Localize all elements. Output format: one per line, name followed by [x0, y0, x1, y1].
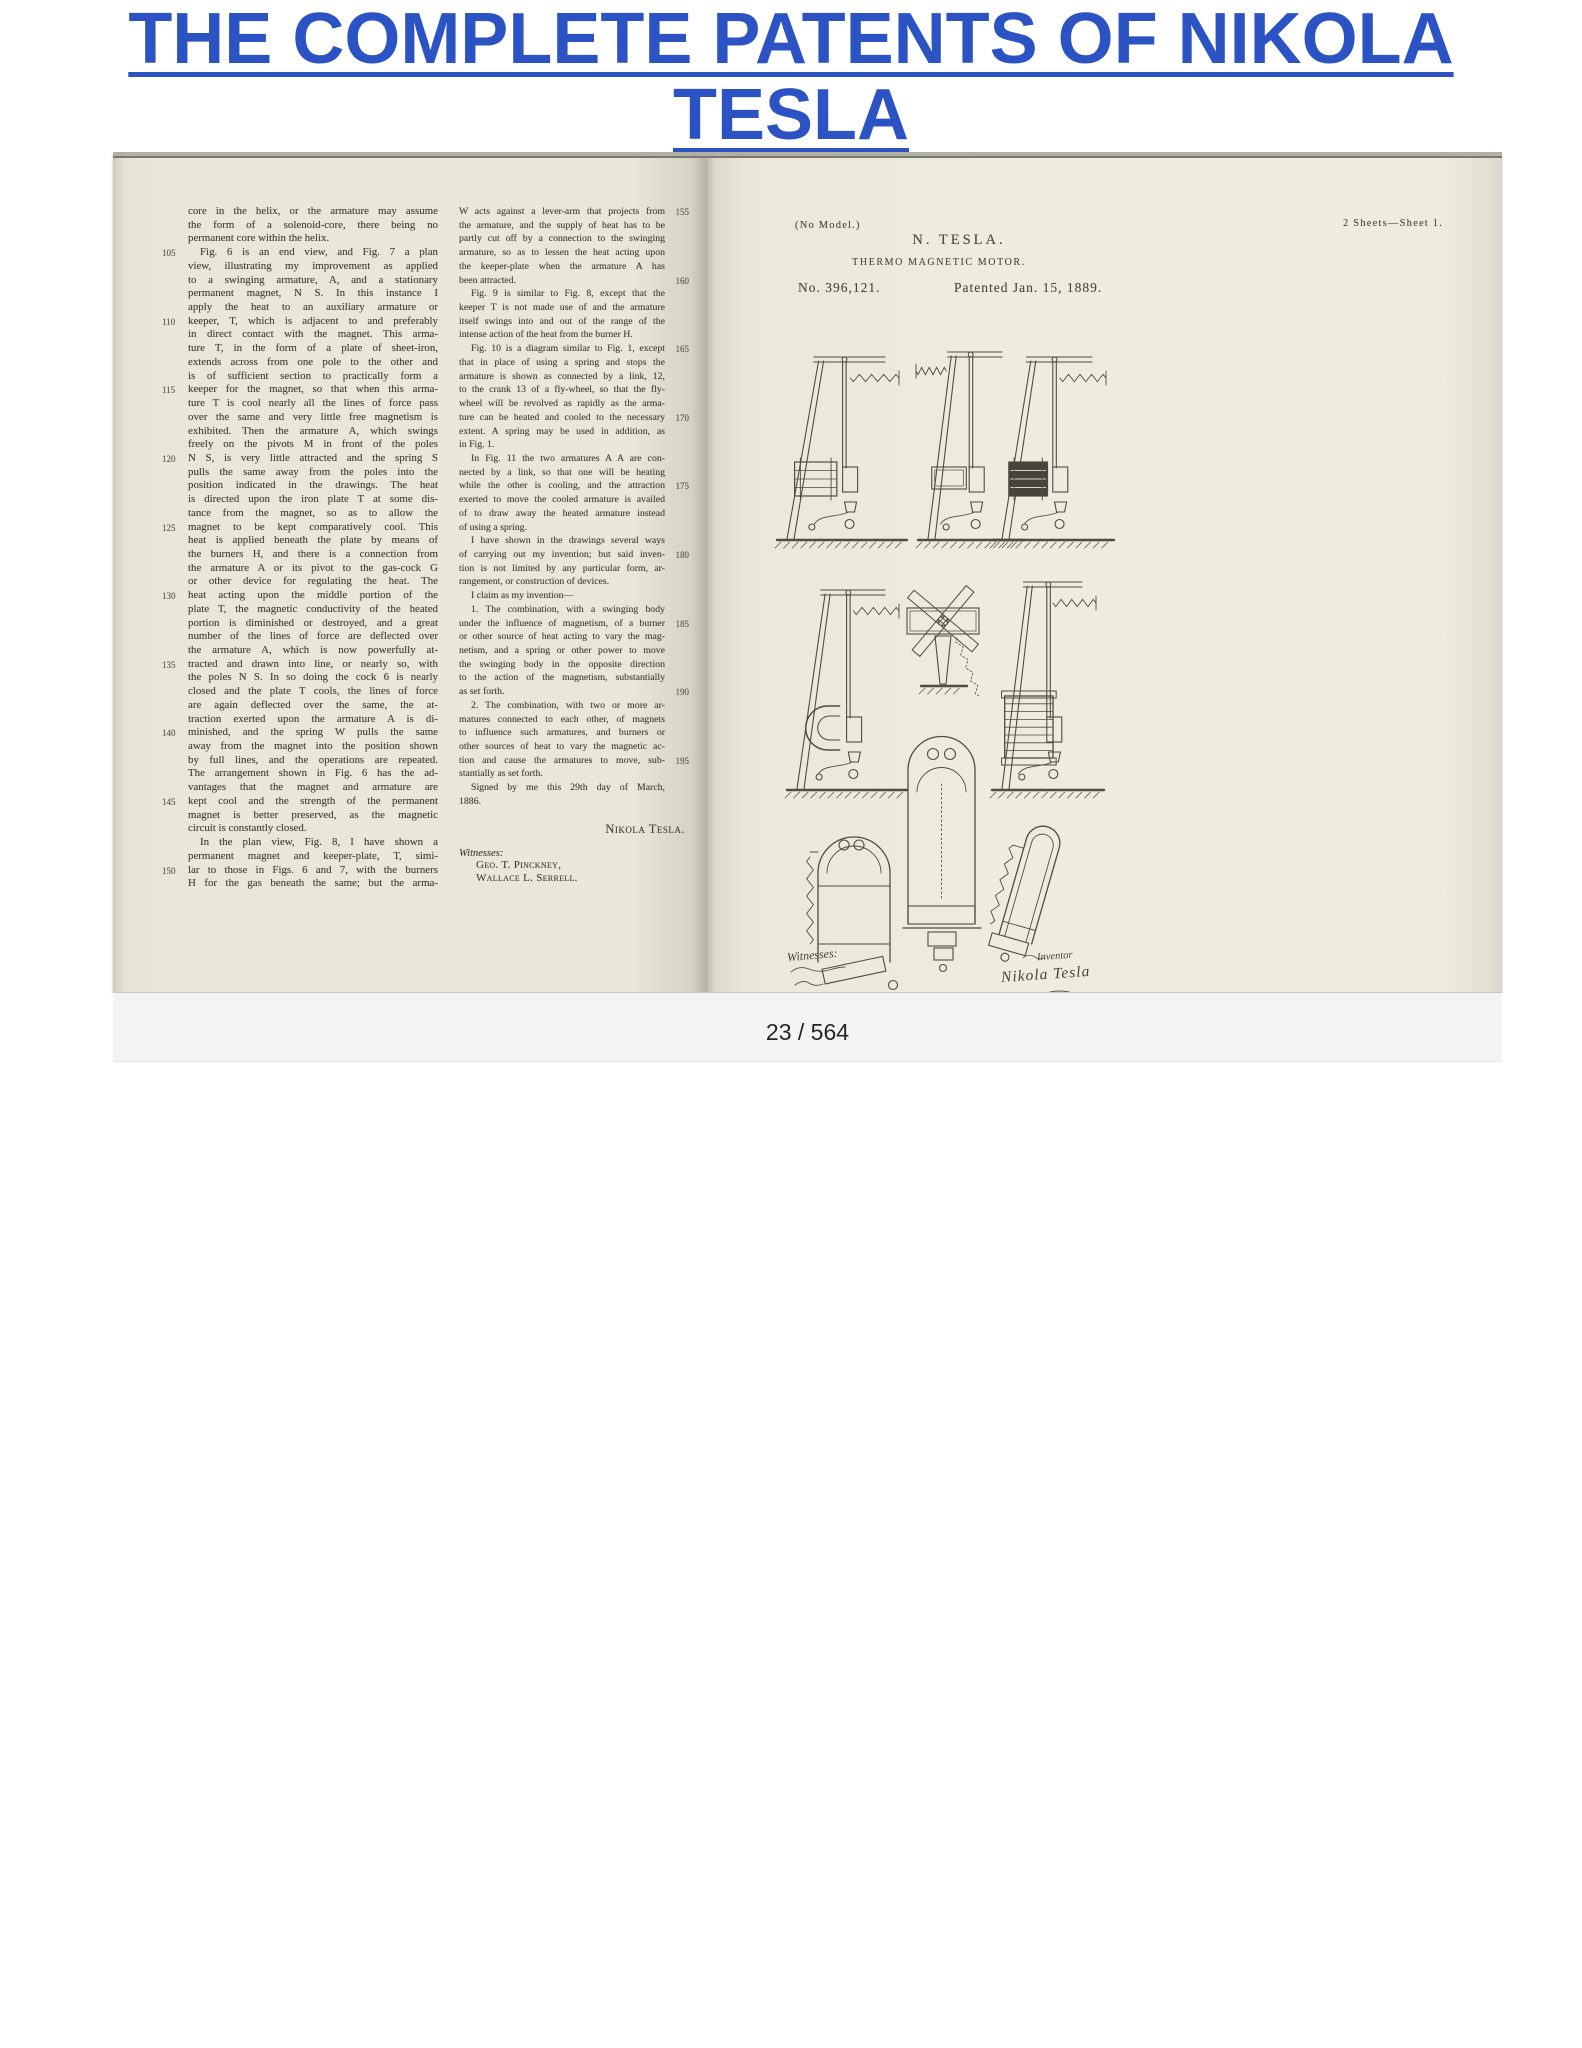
text-line: 125magnet to be kept comparatively cool.… — [162, 521, 438, 535]
text-line: 145kept cool and the strength of the per… — [162, 795, 438, 809]
text-line: tance from the magnet, so as to allow th… — [162, 507, 438, 521]
text-line: ture T is cool nearly all the lines of f… — [162, 397, 438, 411]
text-line: W acts against a lever-arm that projects… — [459, 205, 689, 219]
text-line: rangement, or construction of devices. — [459, 575, 689, 589]
text-line: extent. A spring may be used in addition… — [459, 425, 689, 439]
page-indicator-bar: 23 / 564 — [113, 993, 1502, 1062]
figure-9-art — [979, 818, 1064, 967]
witnesses-label: Witnesses: — [459, 848, 689, 859]
text-line: of to draw away the heated armature inst… — [459, 507, 689, 521]
patent-drawing-page: (No Model.) 2 Sheets—Sheet 1. N. TESLA. … — [707, 152, 1502, 992]
text-line: core in the helix, or the armature may a… — [162, 205, 438, 219]
text-line: the armature A or its pivot to the gas-c… — [162, 562, 438, 576]
text-line: to influence such armatures, and burners… — [459, 726, 689, 740]
text-line: over the same and very little free magne… — [162, 411, 438, 425]
text-line: or other device for regulating the heat.… — [162, 575, 438, 589]
text-line: 110keeper, T, which is adjacent to and p… — [162, 315, 438, 329]
text-line: by full lines, and the operations are re… — [162, 754, 438, 768]
witness-name-1: Geo. T. Pinckney, — [459, 859, 689, 872]
text-line: of using a spring. — [459, 521, 689, 535]
text-line: to the crank 13 of a fly-wheel, so that … — [459, 383, 689, 397]
text-line: the keeper-plate when the armature A has — [459, 260, 689, 274]
text-line: the armature, and the supply of heat has… — [459, 219, 689, 233]
text-line: is directed upon the iron plate T at som… — [162, 493, 438, 507]
text-line: 115keeper for the magnet, so that when t… — [162, 383, 438, 397]
text-line: the form of a solenoid-core, there being… — [162, 219, 438, 233]
text-line: I claim as my invention— — [459, 589, 689, 603]
text-line: number of the lines of force are deflect… — [162, 630, 438, 644]
text-line: keeper T is not made use of and the arma… — [459, 301, 689, 315]
text-line: exhibited. Then the armature A, which sw… — [162, 425, 438, 439]
text-line: extends across from one pole to the othe… — [162, 356, 438, 370]
text-line: permanent core within the helix. — [162, 232, 438, 246]
text-line: armature is shown as connected by a link… — [459, 370, 689, 384]
text-line: 150lar to those in Figs. 6 and 7, with t… — [162, 864, 438, 878]
text-line: H for the gas beneath the same; but the … — [162, 877, 438, 891]
text-line: 105Fig. 6 is an end view, and Fig. 7 a p… — [162, 246, 438, 260]
text-line: while the other is cooling, and the attr… — [459, 479, 689, 493]
text-line: plate T, the magnetic conductivity of th… — [162, 603, 438, 617]
patent-figures-art — [707, 152, 1502, 992]
document-title-link[interactable]: THE COMPLETE PATENTS OF NIKOLA TESLA — [0, 2, 1582, 153]
text-column-2: W acts against a lever-arm that projects… — [459, 205, 689, 885]
text-line: position indicated in the drawings. The … — [162, 479, 438, 493]
text-line: wheel will be revolved as rapidly as the… — [459, 397, 689, 411]
figure-8-art — [807, 837, 898, 990]
text-line: 2. The combination, with two or more ar- — [459, 699, 689, 713]
text-line: partly cut off by a connection to the sw… — [459, 232, 689, 246]
text-line: 1886. — [459, 795, 689, 809]
figure-2-art — [775, 357, 907, 548]
text-line: tion and cause the armatures to move, su… — [459, 754, 689, 768]
text-line: stantially as set forth. — [459, 767, 689, 781]
page-indicator: 23 / 564 — [766, 1019, 849, 1045]
text-line: Signed by me this 29th day of March, — [459, 781, 689, 795]
text-line: apply the heat to an auxiliary armature … — [162, 301, 438, 315]
figure-4-art — [785, 590, 907, 798]
text-line: 120N S, is very little attracted and the… — [162, 452, 438, 466]
scan-top-edge — [113, 152, 1502, 158]
text-line: to a swinging armature, A, and a station… — [162, 274, 438, 288]
text-line: closed and the plate T cools, the lines … — [162, 685, 438, 699]
text-line: of carrying out my invention; but said i… — [459, 548, 689, 562]
text-line: In the plan view, Fig. 8, I have shown a — [162, 836, 438, 850]
text-line: netism, and a spring or other power to m… — [459, 644, 689, 658]
text-column-1: core in the helix, or the armature may a… — [162, 205, 438, 891]
text-line: ture T, in the form of a plate of sheet-… — [162, 342, 438, 356]
text-line: 1. The combination, with a swinging body — [459, 603, 689, 617]
text-line: 140minished, and the spring W pulls the … — [162, 726, 438, 740]
text-line: view, illustrating my improvement as app… — [162, 260, 438, 274]
text-column-2-lines: W acts against a lever-arm that projects… — [459, 205, 689, 809]
text-line: itself swings into and out of the range … — [459, 315, 689, 329]
text-line: nected by a link, so that one will be he… — [459, 466, 689, 480]
text-line: In Fig. 11 the two armatures A A are con… — [459, 452, 689, 466]
text-line: exerted to move the cooled armature is a… — [459, 493, 689, 507]
text-line: pulls the same away from the poles into … — [162, 466, 438, 480]
text-line: the swinging body in the opposite direct… — [459, 658, 689, 672]
page-root: { "header": { "title": "THE COMPLETE PAT… — [0, 0, 1582, 2048]
text-line: that in place of using a spring and stop… — [459, 356, 689, 370]
text-line: freely on the pivots M in front of the p… — [162, 438, 438, 452]
text-line: 130heat acting upon the middle portion o… — [162, 589, 438, 603]
text-line: other sources of heat to vary the magnet… — [459, 740, 689, 754]
text-line: away from the magnet into the position s… — [162, 740, 438, 754]
text-line: intense action of the heat from the burn… — [459, 328, 689, 342]
text-line: the armature A, which is now powerfully … — [162, 644, 438, 658]
text-line: are again deflected over the same, the a… — [162, 699, 438, 713]
text-line: under the influence of magnetism, of a b… — [459, 617, 689, 631]
book-left-page: core in the helix, or the armature may a… — [113, 152, 707, 992]
text-line: ture can be heated and cooled to the nec… — [459, 411, 689, 425]
figure-5-art — [990, 582, 1104, 798]
text-line: is of sufficient section to practically … — [162, 370, 438, 384]
text-line: the burners H, and there is a connection… — [162, 548, 438, 562]
figure-3-art — [990, 357, 1114, 548]
text-line: permanent magnet and keeper-plate, T, si… — [162, 850, 438, 864]
text-line: the poles N S. In so doing the cock 6 is… — [162, 671, 438, 685]
figure-6-art — [907, 586, 979, 696]
witness-name-2: Wallace L. Serrell. — [459, 872, 689, 885]
text-line: Fig. 9 is similar to Fig. 8, except that… — [459, 287, 689, 301]
text-line: Fig. 10 is a diagram similar to Fig. 1, … — [459, 342, 689, 356]
text-line: matures connected to each other, of magn… — [459, 713, 689, 727]
text-line: vantages that the magnet and armature ar… — [162, 781, 438, 795]
signature-line: Nikola Tesla. — [459, 822, 689, 837]
text-line: magnet is better preserved, as the magne… — [162, 809, 438, 823]
text-line: tion is not limited by any particular fo… — [459, 562, 689, 576]
text-line: been attracted.160 — [459, 274, 689, 288]
text-line: 135tracted and drawn into line, or nearl… — [162, 658, 438, 672]
figure-7-art — [903, 737, 981, 972]
text-line: heat is applied beneath the plate by mea… — [162, 534, 438, 548]
text-line: permanent magnet, N S. In this instance … — [162, 287, 438, 301]
text-line: portion is diminished or destroyed, and … — [162, 617, 438, 631]
text-line: circuit is constantly closed. — [162, 822, 438, 836]
document-spread: core in the helix, or the armature may a… — [113, 152, 1502, 992]
text-line: as set forth.190 — [459, 685, 689, 699]
text-line: armature, so as to lessen the heat actin… — [459, 246, 689, 260]
text-line: or other source of heat acting to vary t… — [459, 630, 689, 644]
text-line: to the action of the magnetism, substant… — [459, 671, 689, 685]
text-line: in direct contact with the magnet. This … — [162, 328, 438, 342]
text-line: in Fig. 1. — [459, 438, 689, 452]
text-line: The arrangement shown in Fig. 6 has the … — [162, 767, 438, 781]
text-line: I have shown in the drawings several way… — [459, 534, 689, 548]
text-line: traction exerted upon the armature A is … — [162, 713, 438, 727]
figure-1-art — [916, 352, 1024, 548]
